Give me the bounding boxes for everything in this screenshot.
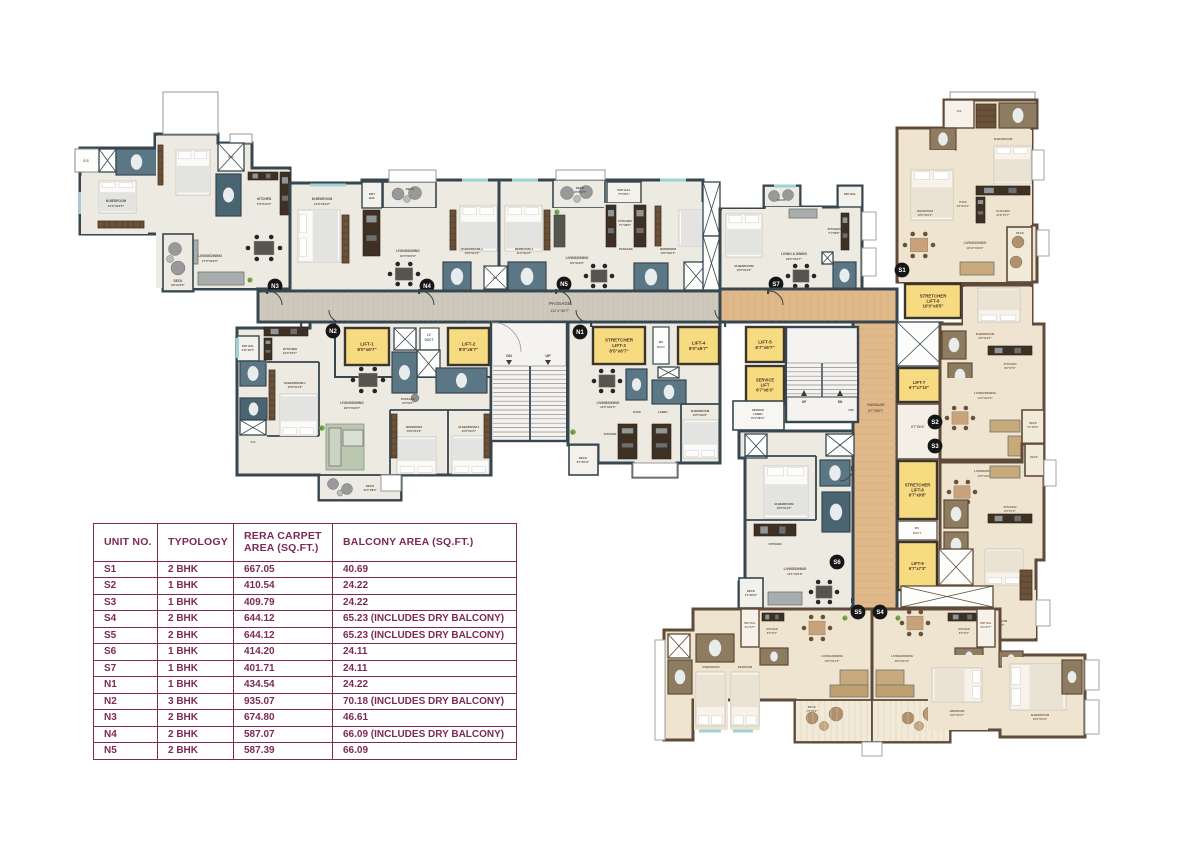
svg-text:S.S: S.S	[251, 440, 256, 444]
svg-text:LIVING/DINING: LIVING/DINING	[198, 254, 222, 258]
svg-text:2'11"X6'7": 2'11"X6'7"	[242, 348, 255, 352]
svg-text:10'0"x8'5": 10'0"x8'5"	[923, 304, 944, 309]
svg-text:9'0"X13'3": 9'0"X13'3"	[570, 261, 585, 265]
svg-text:8'0"x6'7": 8'0"x6'7"	[459, 347, 478, 352]
svg-text:LOBBY: LOBBY	[658, 410, 668, 414]
svg-text:10'0"X11'0": 10'0"X11'0"	[736, 268, 752, 272]
svg-text:LIVING/DINING: LIVING/DINING	[396, 249, 420, 253]
svg-text:M.BEDROOM-1: M.BEDROOM-1	[459, 425, 480, 429]
svg-text:6'11"X8'11": 6'11"X8'11"	[751, 416, 766, 420]
svg-text:LIFT-2: LIFT-2	[462, 341, 476, 346]
svg-text:8'5"x6'7": 8'5"x6'7"	[609, 349, 628, 354]
svg-text:6'7"x7'3": 6'7"x7'3"	[909, 566, 927, 571]
svg-text:LIVING/DINING: LIVING/DINING	[964, 241, 987, 245]
svg-text:M.BEDROOM: M.BEDROOM	[702, 665, 720, 669]
svg-text:KITCHEN: KITCHEN	[257, 197, 272, 201]
svg-text:S.S: S.S	[228, 155, 233, 159]
svg-text:DECK: DECK	[576, 186, 585, 190]
svg-text:BAL: BAL	[369, 196, 375, 200]
svg-text:DECK: DECK	[808, 705, 816, 709]
svg-text:DRY BAL: DRY BAL	[242, 344, 255, 348]
svg-text:UP: UP	[545, 354, 551, 358]
svg-text:N2: N2	[329, 329, 337, 335]
svg-text:20'2"X13'7": 20'2"X13'7"	[786, 257, 802, 261]
svg-text:7'5"X3'1": 7'5"X3'1"	[618, 192, 630, 196]
svg-text:LIVING/DINING: LIVING/DINING	[974, 391, 997, 395]
svg-text:DN: DN	[506, 354, 512, 358]
svg-text:LIVING/DINING: LIVING/DINING	[340, 401, 364, 405]
svg-text:10'0"X11'6": 10'0"X11'6"	[1033, 717, 1048, 721]
svg-text:S5: S5	[854, 610, 862, 616]
svg-text:11'4"X8'9": 11'4"X8'9"	[363, 488, 377, 492]
svg-text:17'0"X10'0": 17'0"X10'0"	[202, 259, 219, 263]
svg-text:11'0"X11'0": 11'0"X11'0"	[517, 251, 533, 255]
svg-text:N1: N1	[576, 330, 584, 336]
svg-text:10'0"X4'5": 10'0"X4'5"	[573, 190, 587, 194]
svg-text:9'2"X3'1": 9'2"X3'1"	[402, 401, 414, 405]
svg-text:S.S: S.S	[83, 159, 89, 163]
svg-text:10'0"X10'1": 10'0"X10'1"	[660, 251, 676, 255]
svg-text:DECK: DECK	[747, 589, 755, 593]
svg-text:12'0"X7'1": 12'0"X7'1"	[283, 351, 298, 355]
svg-text:10'0"X11'0": 10'0"X11'0"	[776, 506, 792, 510]
svg-text:PASS: PASS	[959, 200, 967, 204]
svg-text:PASS: PASS	[633, 410, 641, 414]
svg-text:DN: DN	[838, 400, 843, 404]
svg-text:DUCT: DUCT	[657, 345, 665, 349]
svg-text:4'1"X9'10": 4'1"X9'10"	[745, 594, 758, 597]
svg-text:DUCT: DUCT	[913, 531, 921, 535]
svg-text:S2: S2	[931, 420, 939, 426]
svg-text:10'0"X11'0": 10'0"X11'0"	[950, 713, 965, 717]
svg-text:6'7"X8'4": 6'7"X8'4"	[911, 425, 925, 429]
svg-text:10'8"X11'0": 10'8"X11'0"	[464, 251, 480, 255]
svg-text:20'0"X10'0": 20'0"X10'0"	[344, 406, 361, 410]
svg-text:S6: S6	[833, 560, 841, 566]
svg-text:8'0"X7'0": 8'0"X7'0"	[959, 632, 969, 635]
svg-text:M.BEDROOM: M.BEDROOM	[312, 197, 333, 201]
svg-text:PASSAGE: PASSAGE	[549, 301, 571, 306]
svg-text:14'9"X11'2": 14'9"X11'2"	[406, 429, 422, 433]
svg-text:8'0"X6'0": 8'0"X6'0"	[806, 709, 818, 713]
svg-text:S7: S7	[772, 282, 780, 288]
svg-text:6'7"x6'7": 6'7"x6'7"	[755, 345, 774, 350]
svg-text:6'7"x9'8": 6'7"x9'8"	[909, 492, 927, 497]
svg-text:DRY BAL: DRY BAL	[745, 622, 756, 625]
svg-text:6'7"x6'3": 6'7"x6'3"	[756, 387, 774, 392]
svg-text:M.BEDROOM: M.BEDROOM	[976, 332, 995, 336]
svg-text:3'0"X10'1": 3'0"X10'1"	[957, 204, 970, 208]
svg-text:DECK: DECK	[406, 187, 415, 191]
svg-text:6'7"X55'7": 6'7"X55'7"	[868, 409, 884, 413]
svg-text:MV: MV	[659, 340, 664, 344]
svg-text:PASSAGE: PASSAGE	[401, 397, 415, 401]
svg-text:LIFT-3: LIFT-3	[612, 343, 626, 348]
svg-text:7'1"X8'6": 7'1"X8'6"	[619, 223, 632, 227]
svg-text:8'0"X7'0": 8'0"X7'0"	[1004, 366, 1016, 370]
svg-text:KITCHEN: KITCHEN	[1004, 362, 1017, 366]
svg-text:LIFT-5: LIFT-5	[758, 339, 772, 344]
svg-text:10'0"X13'3": 10'0"X13'3"	[600, 405, 616, 409]
svg-text:N4: N4	[423, 284, 431, 290]
svg-text:12'0"X10'5": 12'0"X10'5"	[108, 204, 125, 208]
svg-text:11'6"X7'7": 11'6"X7'7"	[996, 213, 1010, 217]
svg-text:KITCHEN: KITCHEN	[828, 227, 841, 231]
svg-text:112'4"X6'7": 112'4"X6'7"	[550, 309, 570, 313]
svg-text:10'0"X11'3": 10'0"X11'3"	[894, 659, 910, 663]
svg-text:10'0"X11'3": 10'0"X11'3"	[824, 659, 840, 663]
svg-text:14'1"X10'0": 14'1"X10'0"	[787, 572, 803, 576]
svg-text:8'0"X7'0": 8'0"X7'0"	[1004, 509, 1016, 513]
svg-text:KITCHEN: KITCHEN	[1004, 505, 1017, 509]
svg-text:BEDROOM: BEDROOM	[738, 665, 753, 669]
svg-text:FRD: FRD	[848, 408, 853, 412]
svg-text:LIFT-4: LIFT-4	[692, 340, 706, 345]
svg-text:14'0"X10'0": 14'0"X10'0"	[977, 396, 993, 400]
svg-text:LIVING/DINING: LIVING/DINING	[566, 256, 589, 260]
svg-text:LOBBY: LOBBY	[753, 412, 763, 416]
svg-text:PASSAGE: PASSAGE	[867, 403, 885, 407]
svg-text:10'0"X11'5": 10'0"X11'5"	[462, 429, 477, 433]
svg-text:M.BEDROOM: M.BEDROOM	[994, 137, 1013, 141]
svg-text:N3: N3	[271, 284, 279, 290]
svg-text:STRETCHER: STRETCHER	[605, 338, 634, 343]
svg-text:M.BEDROOM: M.BEDROOM	[691, 409, 710, 413]
svg-text:6'7"x7'10": 6'7"x7'10"	[909, 385, 929, 390]
svg-text:M.BEDROOM: M.BEDROOM	[1031, 713, 1050, 717]
svg-text:BEDROOM: BEDROOM	[950, 709, 965, 713]
svg-text:DECK: DECK	[579, 456, 588, 460]
svg-text:S4: S4	[876, 610, 884, 616]
svg-text:13'10"X10'2": 13'10"X10'2"	[966, 246, 984, 250]
svg-text:DRY BAL: DRY BAL	[844, 192, 857, 196]
svg-text:8'0"x6'7": 8'0"x6'7"	[689, 346, 708, 351]
svg-text:KITCHEN: KITCHEN	[604, 432, 616, 436]
svg-text:DECK: DECK	[1029, 421, 1037, 425]
svg-text:8'9"X10'5": 8'9"X10'5"	[171, 283, 185, 287]
svg-text:S1: S1	[898, 268, 906, 274]
svg-text:S.S: S.S	[957, 109, 962, 113]
svg-text:DECK: DECK	[1016, 231, 1024, 235]
svg-text:8'0"x6'7": 8'0"x6'7"	[357, 347, 376, 352]
svg-text:M.BEDROOM: M.BEDROOM	[106, 199, 127, 203]
svg-text:S.S: S.S	[493, 276, 498, 280]
svg-text:DRY BAL: DRY BAL	[617, 188, 630, 192]
svg-text:KITCHEN: KITCHEN	[769, 542, 782, 546]
svg-text:8'1"X6'11": 8'1"X6'11"	[577, 460, 590, 464]
svg-text:2'11"X7'7": 2'11"X7'7"	[744, 627, 755, 629]
svg-text:10'0"X15'3": 10'0"X15'3"	[400, 254, 417, 258]
svg-text:7'1"X8'6": 7'1"X8'6"	[828, 231, 840, 235]
svg-text:7'6"X10'4": 7'6"X10'4"	[257, 202, 272, 206]
svg-text:DECK: DECK	[1030, 455, 1038, 459]
svg-text:LIVING/DINING: LIVING/DINING	[784, 567, 807, 571]
svg-text:2'11"X7'7": 2'11"X7'7"	[980, 627, 991, 629]
svg-text:10'8"X11'6": 10'8"X11'6"	[287, 385, 303, 389]
svg-text:8'0"X7'0": 8'0"X7'0"	[767, 632, 777, 635]
svg-text:DRY BAL: DRY BAL	[981, 622, 992, 625]
svg-text:KITCHEN: KITCHEN	[766, 627, 778, 631]
svg-text:PASSAGE: PASSAGE	[619, 247, 633, 251]
svg-text:LIVING & DINING: LIVING & DINING	[781, 252, 807, 256]
svg-text:LIFT-1: LIFT-1	[360, 341, 374, 346]
svg-text:11'0"X10'2": 11'0"X10'2"	[314, 202, 331, 206]
svg-text:TOILET: TOILET	[131, 157, 142, 161]
svg-text:5'1"X6'11": 5'1"X6'11"	[1027, 426, 1039, 429]
svg-text:LIVING/DINING: LIVING/DINING	[821, 654, 844, 658]
svg-text:S3: S3	[931, 444, 939, 450]
svg-text:9'6"X10'0": 9'6"X10'0"	[978, 336, 992, 340]
svg-text:KITCHEN: KITCHEN	[958, 627, 970, 631]
svg-text:DUCT: DUCT	[425, 338, 434, 342]
svg-text:LIVING/DINING: LIVING/DINING	[891, 654, 914, 658]
svg-text:10'0"X10'9": 10'0"X10'9"	[693, 413, 708, 417]
svg-text:10'0"X10'2": 10'0"X10'2"	[917, 213, 933, 217]
svg-text:N5: N5	[560, 282, 568, 288]
svg-text:DECK: DECK	[777, 198, 786, 202]
svg-text:MV: MV	[915, 526, 920, 530]
